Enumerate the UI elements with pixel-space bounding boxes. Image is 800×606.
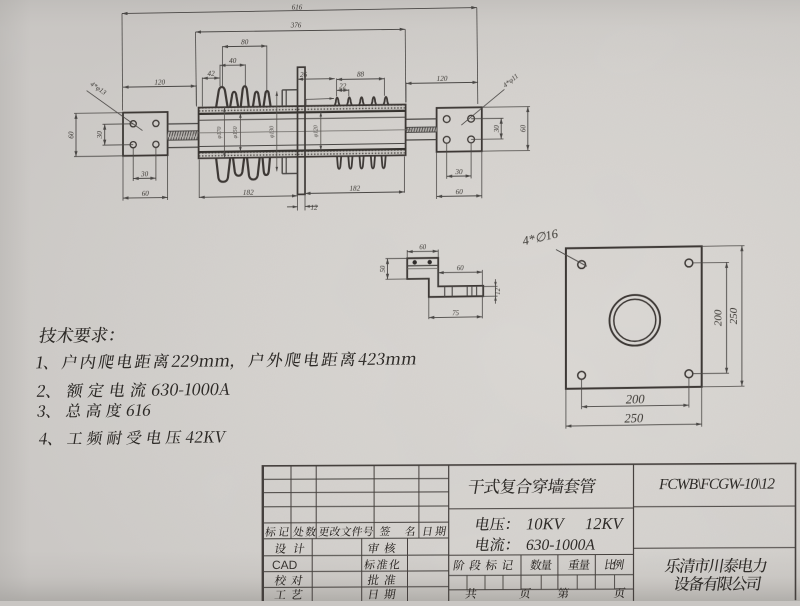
- svg-text:60: 60: [142, 190, 150, 198]
- svg-text:200: 200: [713, 309, 725, 326]
- svg-text:φ130: φ130: [270, 126, 276, 138]
- svg-text:30: 30: [140, 170, 149, 178]
- svg-text:10KV: 10KV: [526, 514, 566, 533]
- svg-text:630-1000A: 630-1000A: [526, 537, 595, 554]
- svg-text:30: 30: [493, 125, 501, 134]
- svg-text:60: 60: [68, 131, 76, 139]
- svg-text:250: 250: [624, 411, 643, 425]
- svg-text:26: 26: [300, 71, 308, 79]
- svg-text:182: 182: [349, 185, 360, 193]
- svg-text:12KV: 12KV: [585, 514, 625, 533]
- svg-text:88: 88: [357, 71, 365, 79]
- svg-text:φ150: φ150: [233, 126, 239, 138]
- svg-text:120: 120: [154, 78, 165, 86]
- svg-text:12: 12: [495, 287, 502, 295]
- svg-text:φ120: φ120: [314, 125, 320, 137]
- svg-text:200: 200: [626, 392, 645, 406]
- svg-text:42: 42: [208, 70, 216, 78]
- svg-text:22: 22: [339, 82, 347, 90]
- svg-text:250: 250: [728, 307, 740, 324]
- svg-text:376: 376: [290, 22, 302, 30]
- svg-text:75: 75: [452, 310, 459, 317]
- svg-text:120: 120: [437, 75, 448, 83]
- svg-text:30: 30: [454, 168, 463, 176]
- svg-text:60: 60: [519, 124, 527, 132]
- svg-text:50: 50: [380, 265, 387, 273]
- svg-text:616: 616: [292, 4, 303, 12]
- svg-text:CAD: CAD: [272, 558, 298, 572]
- svg-text:182: 182: [243, 188, 254, 196]
- svg-text:30: 30: [96, 131, 104, 140]
- svg-text:FCWB\FCGW-10\12: FCWB\FCGW-10\12: [658, 476, 775, 494]
- svg-text:60: 60: [456, 188, 464, 196]
- svg-text:φ170: φ170: [217, 127, 223, 139]
- svg-text:60: 60: [457, 265, 464, 272]
- svg-text:80: 80: [241, 38, 249, 46]
- svg-text:60: 60: [419, 244, 426, 251]
- svg-text:40: 40: [229, 57, 237, 65]
- svg-text:12: 12: [310, 204, 318, 212]
